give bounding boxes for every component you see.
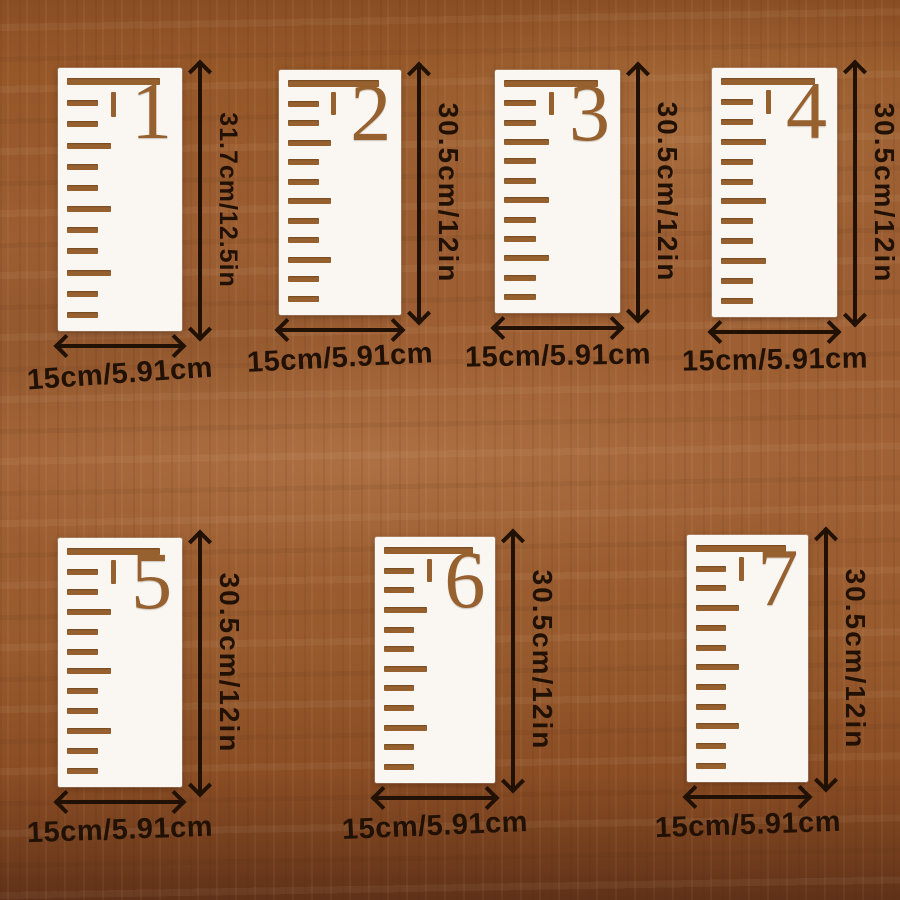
height-dimension-label: 30.5cm/12in xyxy=(526,570,558,751)
ruler-stencil-group-1: 1 31.7cm/12.5in 15cm/5.91cm xyxy=(58,68,182,331)
width-dimension-label: 15cm/5.91cm xyxy=(26,352,214,398)
ruler-tick xyxy=(721,258,766,264)
card-number: 5 xyxy=(131,540,172,622)
height-arrow-icon xyxy=(511,533,515,789)
height-arrow-icon xyxy=(417,66,421,321)
ruler-tick xyxy=(67,206,111,212)
ruler-tick xyxy=(721,298,753,304)
ruler-stencil-group-3: 3 30.5cm/12in 15cm/5.91cm xyxy=(495,70,620,313)
ruler-tick xyxy=(504,217,536,223)
ruler-card: 2 xyxy=(279,70,401,315)
ruler-tick xyxy=(67,248,98,254)
ruler-tick xyxy=(504,255,549,261)
ruler-tick xyxy=(504,236,536,242)
ruler-tick xyxy=(384,725,427,731)
ruler-tick xyxy=(504,120,536,126)
ruler-stencil-group-5: 5 30.5cm/12in 15cm/5.91cm xyxy=(58,538,182,787)
ruler-tick xyxy=(696,723,739,729)
ruler-tick xyxy=(721,278,753,284)
ruler-tick xyxy=(696,684,726,690)
ruler-tick xyxy=(288,276,319,282)
ruler-tick xyxy=(67,185,98,191)
ruler-tick xyxy=(696,664,739,670)
ruler-stencil-group-7: 7 30.5cm/12in 15cm/5.91cm xyxy=(687,535,808,782)
width-dimension-label: 15cm/5.91cm xyxy=(26,811,213,850)
ruler-tick xyxy=(721,119,753,125)
height-dimension-label: 30.5cm/12in xyxy=(432,102,464,283)
ruler-tick xyxy=(696,645,726,651)
ruler-tick xyxy=(67,629,98,635)
ruler-tick xyxy=(696,585,726,591)
ruler-tick xyxy=(721,218,753,224)
ruler-card: 3 xyxy=(495,70,620,313)
ruler-top-stub xyxy=(739,557,744,580)
ruler-tick xyxy=(384,666,427,672)
ruler-tick xyxy=(504,275,536,281)
card-number: 3 xyxy=(569,72,610,154)
ruler-tick xyxy=(67,768,98,774)
ruler-tick xyxy=(504,197,549,203)
ruler-top-stub xyxy=(766,90,771,114)
ruler-card: 4 xyxy=(712,68,837,317)
ruler-tick xyxy=(504,139,549,145)
ruler-card: 1 xyxy=(58,68,182,331)
ruler-tick xyxy=(288,179,319,185)
width-dimension-label: 15cm/5.91cm xyxy=(341,806,528,847)
ruler-stencil-group-4: 4 30.5cm/12in 15cm/5.91cm xyxy=(712,68,837,317)
ruler-top-stub xyxy=(331,92,336,115)
ruler-top-stub xyxy=(111,560,116,584)
width-dimension-label: 15cm/5.91cm xyxy=(464,338,651,374)
ruler-tick xyxy=(696,566,726,572)
ruler-tick xyxy=(67,708,98,714)
ruler-tick xyxy=(384,627,414,633)
height-dimension-label: 30.5cm/12in xyxy=(839,568,871,749)
height-dimension-label: 30.5cm/12in xyxy=(213,572,245,753)
ruler-top-stub xyxy=(111,92,116,117)
ruler-tick xyxy=(384,685,414,691)
ruler-tick xyxy=(721,99,753,105)
ruler-tick xyxy=(696,605,739,611)
ruler-tick xyxy=(696,625,726,631)
width-arrow-icon xyxy=(279,328,401,332)
ruler-card: 5 xyxy=(58,538,182,787)
ruler-tick xyxy=(384,764,414,770)
ruler-tick xyxy=(384,646,414,652)
width-arrow-icon xyxy=(375,796,495,800)
ruler-tick xyxy=(288,140,331,146)
ruler-tick xyxy=(288,218,319,224)
ruler-tick xyxy=(67,748,98,754)
ruler-tick xyxy=(67,164,98,170)
height-arrow-icon xyxy=(824,531,828,788)
ruler-tick xyxy=(721,179,753,185)
ruler-tick xyxy=(384,744,414,750)
ruler-tick xyxy=(67,100,98,106)
ruler-tick xyxy=(67,121,98,127)
ruler-tick xyxy=(67,291,98,297)
card-number: 7 xyxy=(757,537,798,619)
ruler-tick xyxy=(67,589,98,595)
ruler-tick xyxy=(384,587,414,593)
ruler-tick xyxy=(67,227,98,233)
ruler-tick xyxy=(67,270,111,276)
card-number: 1 xyxy=(131,70,172,152)
ruler-tick xyxy=(288,237,319,243)
height-arrow-icon xyxy=(636,66,640,319)
ruler-tick xyxy=(721,198,766,204)
ruler-tick xyxy=(67,649,98,655)
ruler-tick xyxy=(67,143,111,149)
height-dimension-label: 30.5cm/12in xyxy=(651,101,683,282)
card-number: 4 xyxy=(786,70,827,152)
ruler-stencil-group-2: 2 30.5cm/12in 15cm/5.91cm xyxy=(279,70,401,315)
ruler-tick xyxy=(384,607,427,613)
ruler-card: 7 xyxy=(687,535,808,782)
ruler-tick xyxy=(67,609,111,615)
height-arrow-icon xyxy=(853,64,857,323)
ruler-tick xyxy=(504,294,536,300)
ruler-tick xyxy=(384,705,414,711)
ruler-tick xyxy=(721,139,766,145)
ruler-tick xyxy=(288,296,319,302)
height-dimension-label: 30.5cm/12in xyxy=(868,102,900,283)
width-dimension-label: 15cm/5.91cm xyxy=(681,342,868,378)
ruler-tick xyxy=(288,198,331,204)
ruler-tick xyxy=(67,688,98,694)
ruler-tick xyxy=(288,120,319,126)
width-dimension-label: 15cm/5.91cm xyxy=(654,806,841,845)
ruler-tick xyxy=(67,569,98,575)
ruler-tick xyxy=(696,743,726,749)
height-arrow-icon xyxy=(198,64,202,337)
width-arrow-icon xyxy=(687,795,808,799)
ruler-tick xyxy=(504,158,536,164)
ruler-tick xyxy=(288,101,319,107)
card-number: 6 xyxy=(444,539,485,621)
width-arrow-icon xyxy=(495,326,620,330)
ruler-tick xyxy=(288,257,331,263)
ruler-tick xyxy=(696,763,726,769)
ruler-tick xyxy=(504,178,536,184)
width-arrow-icon xyxy=(712,330,837,334)
ruler-top-stub xyxy=(549,92,554,115)
width-arrow-icon xyxy=(58,344,182,348)
ruler-top-stub xyxy=(427,559,432,582)
ruler-tick xyxy=(504,100,536,106)
width-dimension-label: 15cm/5.91cm xyxy=(246,337,434,380)
ruler-tick xyxy=(721,159,753,165)
ruler-stencil-group-6: 6 30.5cm/12in 15cm/5.91cm xyxy=(375,537,495,783)
ruler-tick xyxy=(288,159,319,165)
width-arrow-icon xyxy=(58,800,182,804)
height-arrow-icon xyxy=(198,534,202,793)
ruler-tick xyxy=(384,568,414,574)
ruler-tick xyxy=(67,728,111,734)
ruler-tick xyxy=(67,312,98,318)
height-dimension-label: 31.7cm/12.5in xyxy=(213,112,242,288)
card-number: 2 xyxy=(350,72,391,154)
ruler-tick xyxy=(696,704,726,710)
wood-table-background: 1 31.7cm/12.5in 15cm/5.91cm 2 30.5cm/12i… xyxy=(0,0,900,900)
ruler-tick xyxy=(721,238,753,244)
ruler-tick xyxy=(67,668,111,674)
ruler-card: 6 xyxy=(375,537,495,783)
